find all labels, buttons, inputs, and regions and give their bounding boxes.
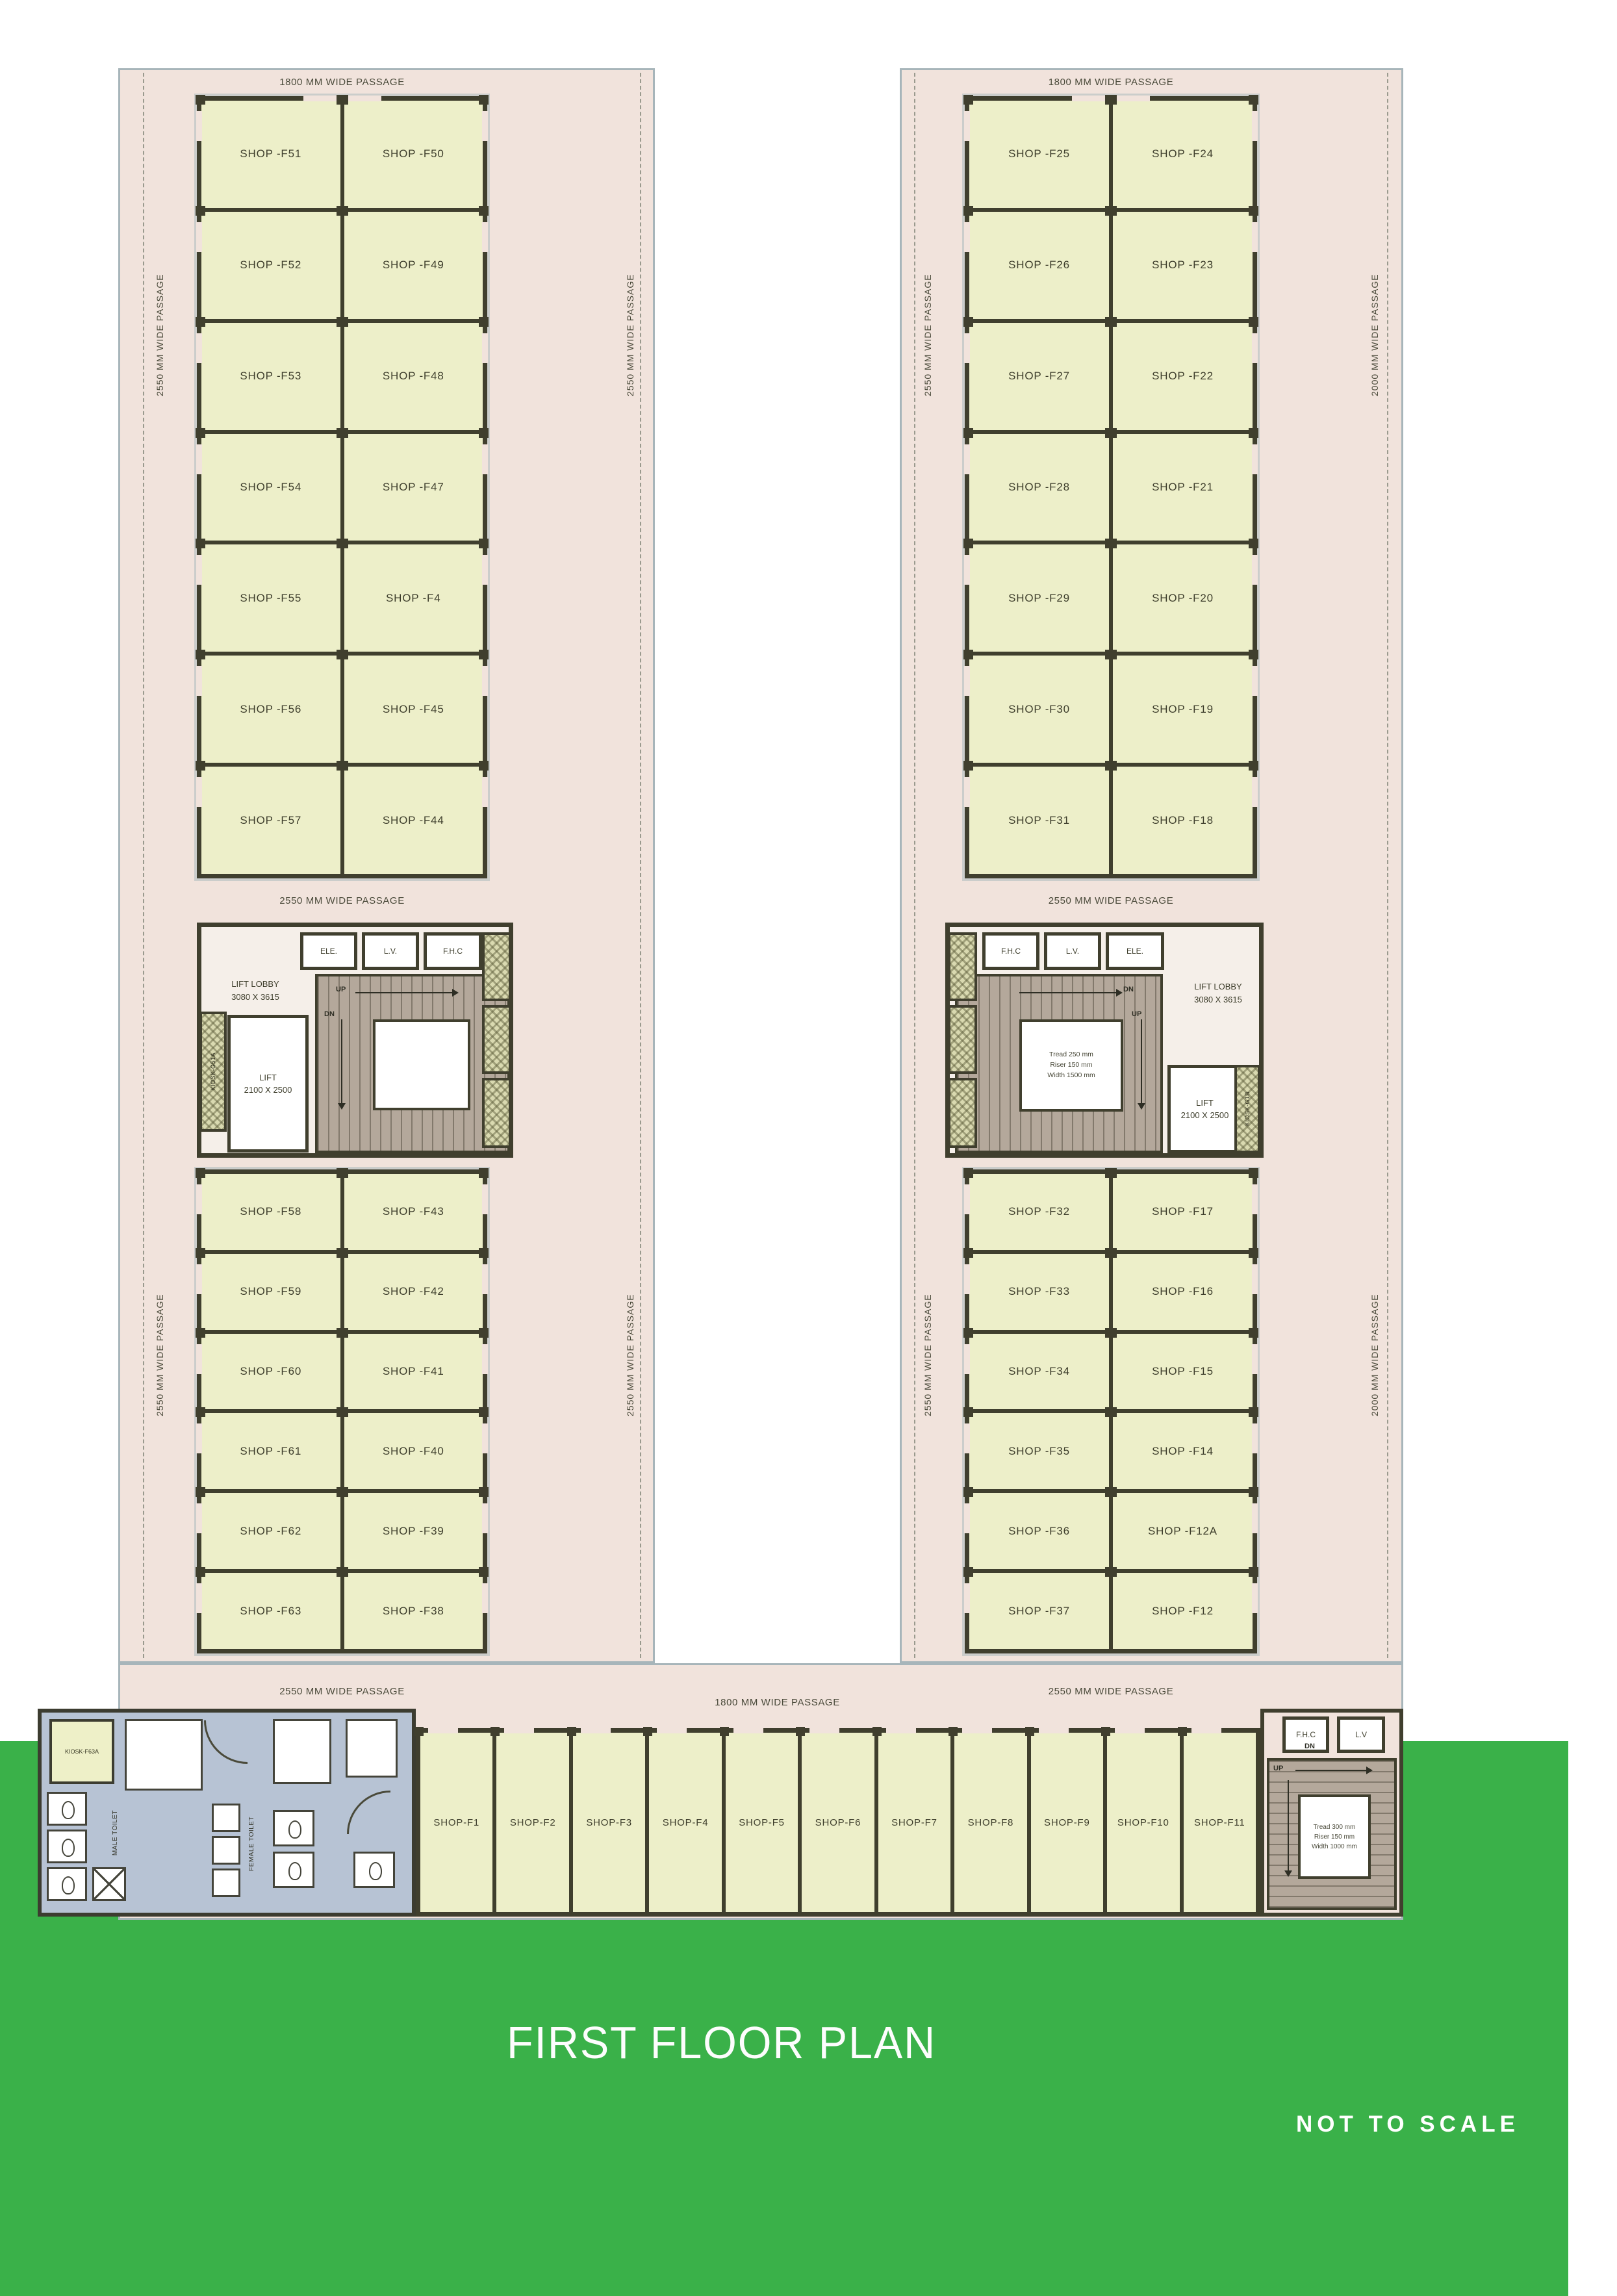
shop-room-label: SHOP -F44 (383, 814, 444, 827)
shop-room-label: SHOP -F19 (1152, 703, 1214, 716)
shop-room: SHOP -F27 (969, 323, 1113, 430)
stair-note-line: Tread 250 mm (1049, 1050, 1093, 1060)
shop-room: SHOP -F12A (1113, 1493, 1253, 1569)
door-gap (196, 1423, 202, 1453)
shop-room: SHOP -F31 (969, 767, 1113, 874)
shop-room-label: SHOP -F30 (1008, 703, 1070, 716)
lift-label: LIFT (1196, 1097, 1214, 1110)
passage-label-vertical: 2550 MM WIDE PASSAGE (155, 1267, 165, 1416)
passage-label-vertical: 2550 MM WIDE PASSAGE (923, 247, 933, 396)
shop-room-label: SHOP -F54 (240, 481, 301, 494)
shop-row: SHOP -F36SHOP -F12A (969, 1493, 1253, 1573)
shop-room: SHOP -F17 (1113, 1174, 1253, 1250)
shop-room-label: SHOP -F31 (1008, 814, 1070, 827)
shop-room-label: SHOP -F22 (1152, 370, 1214, 383)
shop-room: SHOP -F25 (969, 101, 1113, 208)
door-gap (482, 333, 488, 363)
shop-room-label: SHOP -F52 (240, 259, 301, 272)
shop-room-label: SHOP -F45 (383, 703, 444, 716)
door-gap (1252, 1184, 1258, 1214)
stair-note: Tread 300 mm Riser 150 mm Width 1000 mm (1298, 1794, 1371, 1879)
shop-room: SHOP-F10 (1107, 1733, 1183, 1912)
lift-label: LIFT (259, 1071, 277, 1084)
shop-room-label: SHOP -F50 (383, 147, 444, 160)
shop-room: SHOP -F30 (969, 656, 1113, 763)
toilet-stall (273, 1810, 314, 1846)
shop-room: SHOP-F9 (1031, 1733, 1107, 1912)
shop-room-label: SHOP-F7 (891, 1817, 937, 1828)
room-label: F.H.C (443, 947, 463, 956)
door-gap (581, 1728, 611, 1733)
kiosk-stall (482, 1005, 511, 1074)
door-gap (964, 1503, 970, 1533)
shop-room-label: SHOP -F63 (240, 1605, 301, 1618)
door-gap (1252, 1503, 1258, 1533)
door-gap (962, 1728, 992, 1733)
shop-row: SHOP -F55SHOP -F4 (201, 544, 483, 656)
shop-room: SHOP -F53 (201, 323, 344, 430)
door-gap (733, 1728, 763, 1733)
shop-room: SHOP -F24 (1113, 101, 1253, 208)
shop-row: SHOP -F28SHOP -F21 (969, 434, 1253, 545)
toilet-stall (353, 1852, 395, 1888)
shop-room-label: SHOP -F39 (383, 1525, 444, 1538)
right-wing-lower-shop-block: SHOP -F32SHOP -F17SHOP -F33SHOP -F16SHOP… (965, 1169, 1257, 1653)
room-label: F.H.C (1296, 1730, 1316, 1739)
shop-room: SHOP -F60 (201, 1334, 344, 1410)
shop-room-label: SHOP -F23 (1152, 259, 1214, 272)
lift-lobby-dim: 3080 X 3615 (1194, 995, 1242, 1004)
dn-arrow (341, 1019, 342, 1104)
lv-room: L.V. (362, 932, 419, 970)
passage-label-vertical: 2000 MM WIDE PASSAGE (1369, 247, 1380, 396)
door-gap (1252, 111, 1258, 141)
dn-label: DN (324, 1010, 335, 1018)
shop-room: SHOP-F8 (954, 1733, 1030, 1912)
shop-room-label: SHOP -F58 (240, 1205, 301, 1218)
shop-room: SHOP -F50 (344, 101, 483, 208)
stair-note-line: Width 1000 mm (1312, 1842, 1357, 1852)
shop-room-label: SHOP -F28 (1008, 481, 1070, 494)
shop-room: SHOP -F42 (344, 1254, 483, 1330)
shop-room: SHOP -F23 (1113, 212, 1253, 319)
shop-room: SHOP -F19 (1113, 656, 1253, 763)
shop-room: SHOP -F36 (969, 1493, 1113, 1569)
shop-row: SHOP -F54SHOP -F47 (201, 434, 483, 545)
shop-room: SHOP-F11 (1184, 1733, 1256, 1912)
female-toilet-label: FEMALE TOILET (248, 1817, 255, 1871)
shop-row: SHOP -F35SHOP -F14 (969, 1413, 1253, 1493)
shop-row: SHOP -F52SHOP -F49 (201, 212, 483, 323)
door-gap (1252, 222, 1258, 252)
kiosk-stall: KIOSK-G1B (1234, 1065, 1260, 1153)
passage-label-vertical: 2000 MM WIDE PASSAGE (1369, 1267, 1380, 1416)
kiosk-stall: KIOSK-G51A (199, 1012, 227, 1132)
lift-lobby-text: LIFT LOBBY (1194, 982, 1241, 991)
wash-basin (212, 1869, 240, 1897)
shop-room: SHOP -F34 (969, 1334, 1113, 1410)
toilet-stall (273, 1852, 314, 1888)
floor-plan-page: 1800 MM WIDE PASSAGE 1800 MM WIDE PASSAG… (0, 0, 1617, 2296)
door-gap (1252, 1344, 1258, 1374)
shop-room: SHOP-F1 (420, 1733, 496, 1912)
shop-room-label: SHOP -F61 (240, 1445, 301, 1458)
shop-room: SHOP -F4 (344, 544, 483, 652)
shop-room-label: SHOP -F62 (240, 1525, 301, 1538)
door-gap (196, 555, 202, 585)
door-gap (1115, 1728, 1145, 1733)
shop-row: SHOP -F27SHOP -F22 (969, 323, 1253, 434)
shop-room-label: SHOP -F37 (1008, 1605, 1070, 1618)
toilet-lobby (125, 1719, 203, 1791)
shop-room: SHOP -F41 (344, 1334, 483, 1410)
door-gap (482, 777, 488, 807)
shop-room: SHOP -F43 (344, 1174, 483, 1250)
dashed-boundary-line (640, 73, 641, 1658)
shop-room-label: SHOP -F16 (1152, 1285, 1214, 1298)
door-gap (482, 1423, 488, 1453)
room-label: ELE. (1127, 947, 1143, 956)
kiosk-stall: KIOSK-F63A (49, 1719, 114, 1784)
shop-room: SHOP -F35 (969, 1413, 1113, 1489)
room-label: L.V (1355, 1730, 1367, 1739)
shop-room: SHOP -F14 (1113, 1413, 1253, 1489)
shop-room-label: SHOP -F27 (1008, 370, 1070, 383)
door-gap (1252, 444, 1258, 474)
shop-room-label: SHOP -F49 (383, 259, 444, 272)
door-swing-arc (204, 1720, 248, 1764)
shop-room: SHOP-F3 (573, 1733, 649, 1912)
staircase: Tread 250 mm Riser 150 mm Width 1500 mm … (955, 974, 1163, 1153)
door-gap (482, 1503, 488, 1533)
shop-room: SHOP -F63 (201, 1573, 344, 1649)
shop-row: SHOP -F59SHOP -F42 (201, 1254, 483, 1334)
door-gap (196, 1184, 202, 1214)
lift-lobby-text: LIFT LOBBY (231, 979, 279, 989)
shop-row: SHOP -F30SHOP -F19 (969, 656, 1253, 767)
stair-note-line: Tread 300 mm (1314, 1822, 1356, 1832)
shop-room-label: SHOP -F56 (240, 703, 301, 716)
shop-room: SHOP-F2 (496, 1733, 572, 1912)
shop-room-label: SHOP -F36 (1008, 1525, 1070, 1538)
door-gap (196, 333, 202, 363)
shop-room-label: SHOP -F35 (1008, 1445, 1070, 1458)
lift-lobby-label: LIFT LOBBY 3080 X 3615 (1176, 980, 1260, 1006)
dn-label: DN (1305, 1742, 1315, 1750)
door-gap (482, 1184, 488, 1214)
shaft (92, 1867, 126, 1901)
door-gap (657, 1728, 687, 1733)
shop-room: SHOP-F6 (802, 1733, 878, 1912)
shop-room: SHOP-F5 (726, 1733, 802, 1912)
shop-room: SHOP -F45 (344, 656, 483, 763)
kiosk-stall (482, 932, 511, 1001)
kiosk-stall (482, 1078, 511, 1148)
door-gap (964, 1184, 970, 1214)
lift: LIFT 2100 X 2500 (1167, 1065, 1242, 1153)
shop-room-label: SHOP -F15 (1152, 1365, 1214, 1378)
toilet-stall (47, 1792, 87, 1826)
lift-dim: 2100 X 2500 (244, 1084, 292, 1097)
shop-row: SHOP -F37SHOP -F12 (969, 1573, 1253, 1649)
dn-label: DN (1123, 986, 1134, 993)
door-gap (1252, 555, 1258, 585)
door-gap (809, 1728, 839, 1733)
electrical-room: ELE. (1106, 932, 1164, 970)
lv-room: L.V. (1044, 932, 1101, 970)
shop-room-label: SHOP-F10 (1117, 1817, 1169, 1828)
shop-room: SHOP -F28 (969, 434, 1113, 541)
shop-row: SHOP -F57SHOP -F44 (201, 767, 483, 874)
shop-room-label: SHOP -F34 (1008, 1365, 1070, 1378)
door-gap (196, 1344, 202, 1374)
shop-room-label: SHOP -F18 (1152, 814, 1214, 827)
shop-room-label: SHOP-F2 (510, 1817, 556, 1828)
door-gap (482, 222, 488, 252)
shop-room: SHOP -F49 (344, 212, 483, 319)
up-arrow (1141, 1019, 1142, 1104)
shop-room-label: SHOP -F33 (1008, 1285, 1070, 1298)
fire-hose-cabinet: F.H.C (424, 932, 482, 970)
bottom-stair-block: F.H.C L.V Tread 300 mm Riser 150 mm Widt… (1260, 1709, 1403, 1917)
shop-row: SHOP -F34SHOP -F15 (969, 1334, 1253, 1414)
shop-room-label: SHOP -F55 (240, 592, 301, 605)
door-gap (1252, 777, 1258, 807)
passage-label-vertical: 2550 MM WIDE PASSAGE (625, 1267, 635, 1416)
door-gap (482, 666, 488, 696)
shop-room-label: SHOP -F43 (383, 1205, 444, 1218)
door-gap (964, 777, 970, 807)
shop-room-label: SHOP -F57 (240, 814, 301, 827)
dn-arrow (1295, 1770, 1367, 1771)
male-toilet-label: MALE TOILET (112, 1810, 119, 1856)
kiosk-label: KIOSK-G51A (210, 1052, 216, 1091)
shop-room-label: SHOP -F47 (383, 481, 444, 494)
passage-label: 2550 MM WIDE PASSAGE (197, 895, 487, 906)
door-gap (964, 1423, 970, 1453)
shop-row: SHOP -F60SHOP -F41 (201, 1334, 483, 1414)
right-lift-lobby-block: F.H.C L.V. ELE. LIFT LOBBY 3080 X 3615 T… (945, 923, 1264, 1158)
door-gap (1191, 1728, 1221, 1733)
kiosk-stall (948, 1078, 977, 1148)
shop-room: SHOP -F18 (1113, 767, 1253, 874)
shop-room-label: SHOP-F1 (433, 1817, 479, 1828)
door-gap (482, 111, 488, 141)
door-gap (482, 1344, 488, 1374)
shop-room: SHOP -F61 (201, 1413, 344, 1489)
shop-room: SHOP-F7 (878, 1733, 954, 1912)
door-gap (1252, 1583, 1258, 1613)
door-gap (964, 1344, 970, 1374)
lift-lobby-label: LIFT LOBBY 3080 X 3615 (213, 978, 298, 1003)
shop-room: SHOP -F38 (344, 1573, 483, 1649)
shop-row: SHOP -F53SHOP -F48 (201, 323, 483, 434)
shop-row: SHOP -F62SHOP -F39 (201, 1493, 483, 1573)
door-gap (1252, 1423, 1258, 1453)
shop-room-label: SHOP -F42 (383, 1285, 444, 1298)
shop-room-label: SHOP -F51 (240, 147, 301, 160)
wash-basin (212, 1804, 240, 1832)
shop-room-label: SHOP -F59 (240, 1285, 301, 1298)
shop-room-label: SHOP -F12 (1152, 1605, 1214, 1618)
door-gap (1252, 333, 1258, 363)
up-label: UP (336, 986, 346, 993)
kiosk-stall (948, 932, 977, 1001)
stair-note-line: Riser 150 mm (1050, 1060, 1092, 1071)
shop-room-label: SHOP -F14 (1152, 1445, 1214, 1458)
shop-row: SHOP -F33SHOP -F16 (969, 1254, 1253, 1334)
door-gap (482, 1264, 488, 1294)
shop-room-label: SHOP -F26 (1008, 259, 1070, 272)
toilet-stall (47, 1830, 87, 1863)
shop-room-label: SHOP-F6 (815, 1817, 861, 1828)
shop-row: SHOP -F58SHOP -F43 (201, 1174, 483, 1254)
shop-room: SHOP -F52 (201, 212, 344, 319)
door-gap (482, 1583, 488, 1613)
shop-room: SHOP -F44 (344, 767, 483, 874)
shop-room-label: SHOP -F41 (383, 1365, 444, 1378)
up-arrow (1288, 1780, 1289, 1871)
room-label: F.H.C (1001, 947, 1021, 956)
page-title: FIRST FLOOR PLAN (507, 2017, 936, 2069)
door-gap (964, 1583, 970, 1613)
dashed-boundary-line (143, 73, 144, 1658)
door-gap (964, 333, 970, 363)
room-label: ELE. (320, 947, 337, 956)
shop-room-label: SHOP -F17 (1152, 1205, 1214, 1218)
door-gap (964, 222, 970, 252)
door-gap (964, 666, 970, 696)
toilet-room (273, 1719, 331, 1784)
kiosk-label: KIOSK-F63A (65, 1748, 99, 1755)
shop-room-label: SHOP -F53 (240, 370, 301, 383)
door-swing-arc (347, 1791, 390, 1834)
shop-room-label: SHOP-F11 (1194, 1817, 1245, 1828)
shop-row: SHOP -F26SHOP -F23 (969, 212, 1253, 323)
shop-room: SHOP -F39 (344, 1493, 483, 1569)
shop-row: SHOP -F25SHOP -F24 (969, 101, 1253, 212)
toilet-room (346, 1719, 398, 1778)
door-gap (196, 222, 202, 252)
right-wing-upper-shop-block: SHOP -F25SHOP -F24SHOP -F26SHOP -F23SHOP… (965, 96, 1257, 878)
shop-room: SHOP -F48 (344, 323, 483, 430)
shop-row: SHOP -F63SHOP -F38 (201, 1573, 483, 1649)
dashed-boundary-line (914, 73, 915, 1658)
shop-room-label: SHOP -F24 (1152, 147, 1214, 160)
up-arrow (355, 992, 453, 993)
lv-room: L.V (1337, 1716, 1385, 1753)
door-gap (196, 1583, 202, 1613)
room-label: L.V. (384, 947, 397, 956)
fire-hose-cabinet: F.H.C (982, 932, 1039, 970)
shop-room-label: SHOP -F12A (1148, 1525, 1217, 1538)
stair-note: Tread 250 mm Riser 150 mm Width 1500 mm (1019, 1019, 1123, 1112)
shop-room: SHOP -F54 (201, 434, 344, 541)
toilet-block: KIOSK-F63A MALE TOILET FEMALE TOILET (38, 1709, 416, 1917)
shop-room-label: SHOP -F25 (1008, 147, 1070, 160)
ground-shops-row: SHOP-F1SHOP-F2SHOP-F3SHOP-F4SHOP-F5SHOP-… (416, 1728, 1260, 1917)
shop-room: SHOP -F37 (969, 1573, 1113, 1649)
door-gap (1252, 666, 1258, 696)
lift: LIFT 2100 X 2500 (227, 1015, 309, 1153)
shop-room: SHOP -F56 (201, 656, 344, 763)
shop-room-label: SHOP -F32 (1008, 1205, 1070, 1218)
shop-row: SHOP -F31SHOP -F18 (969, 767, 1253, 874)
door-gap (482, 555, 488, 585)
shop-room-label: SHOP -F48 (383, 370, 444, 383)
door-gap (964, 555, 970, 585)
shop-room: SHOP -F57 (201, 767, 344, 874)
shop-room-label: SHOP -F60 (240, 1365, 301, 1378)
door-gap (196, 111, 202, 141)
dn-arrow (1019, 992, 1117, 993)
shop-room-label: SHOP-F8 (968, 1817, 1014, 1828)
shop-row: SHOP -F51SHOP -F50 (201, 101, 483, 212)
shop-room-label: SHOP-F9 (1044, 1817, 1090, 1828)
shop-room: SHOP -F59 (201, 1254, 344, 1330)
shop-room: SHOP -F33 (969, 1254, 1113, 1330)
door-gap (886, 1728, 916, 1733)
shop-room: SHOP -F62 (201, 1493, 344, 1569)
shop-room: SHOP -F21 (1113, 434, 1253, 541)
door-gap (1252, 1264, 1258, 1294)
shop-room: SHOP -F16 (1113, 1254, 1253, 1330)
shop-room: SHOP -F51 (201, 101, 344, 208)
shop-row: SHOP -F32SHOP -F17 (969, 1174, 1253, 1254)
shop-row: SHOP -F56SHOP -F45 (201, 656, 483, 767)
passage-label: 1800 MM WIDE PASSAGE (655, 1697, 900, 1708)
door-gap (196, 1503, 202, 1533)
left-wing-upper-shop-block: SHOP -F51SHOP -F50SHOP -F52SHOP -F49SHOP… (197, 96, 487, 878)
shop-room-label: SHOP -F29 (1008, 592, 1070, 605)
door-gap (964, 444, 970, 474)
shop-room: SHOP -F29 (969, 544, 1113, 652)
up-label: UP (1132, 1010, 1141, 1018)
door-gap (504, 1728, 534, 1733)
shop-room-label: SHOP-F5 (739, 1817, 785, 1828)
door-gap (1039, 1728, 1069, 1733)
door-gap (428, 1728, 458, 1733)
door-gap (196, 666, 202, 696)
shop-room-label: SHOP-F3 (586, 1817, 632, 1828)
lift-lobby-dim: 3080 X 3615 (231, 992, 279, 1002)
shop-room: SHOP -F32 (969, 1174, 1113, 1250)
shop-room: SHOP -F22 (1113, 323, 1253, 430)
shop-room-label: SHOP-F4 (663, 1817, 709, 1828)
kiosk-stall (948, 1005, 977, 1074)
shop-room-label: SHOP -F40 (383, 1445, 444, 1458)
passage-label: 2550 MM WIDE PASSAGE (965, 895, 1257, 906)
door-gap (196, 777, 202, 807)
door-gap (964, 1264, 970, 1294)
shop-room-label: SHOP -F38 (383, 1605, 444, 1618)
passage-label: 2550 MM WIDE PASSAGE (197, 1686, 487, 1697)
door-gap (482, 444, 488, 474)
door-gap (196, 444, 202, 474)
shop-room: SHOP -F26 (969, 212, 1113, 319)
shop-room: SHOP -F15 (1113, 1334, 1253, 1410)
kiosk-label: KIOSK-G1B (1244, 1091, 1251, 1126)
passage-label-vertical: 2550 MM WIDE PASSAGE (155, 247, 165, 396)
toilet-stall (47, 1867, 87, 1901)
shop-room: SHOP -F47 (344, 434, 483, 541)
stair-note-line: Riser 150 mm (1314, 1832, 1355, 1842)
passage-label-vertical: 2550 MM WIDE PASSAGE (923, 1267, 933, 1416)
shop-room: SHOP -F20 (1113, 544, 1253, 652)
up-label: UP (1273, 1765, 1283, 1772)
shop-room: SHOP -F58 (201, 1174, 344, 1250)
passage-label: 2550 MM WIDE PASSAGE (965, 1686, 1257, 1697)
